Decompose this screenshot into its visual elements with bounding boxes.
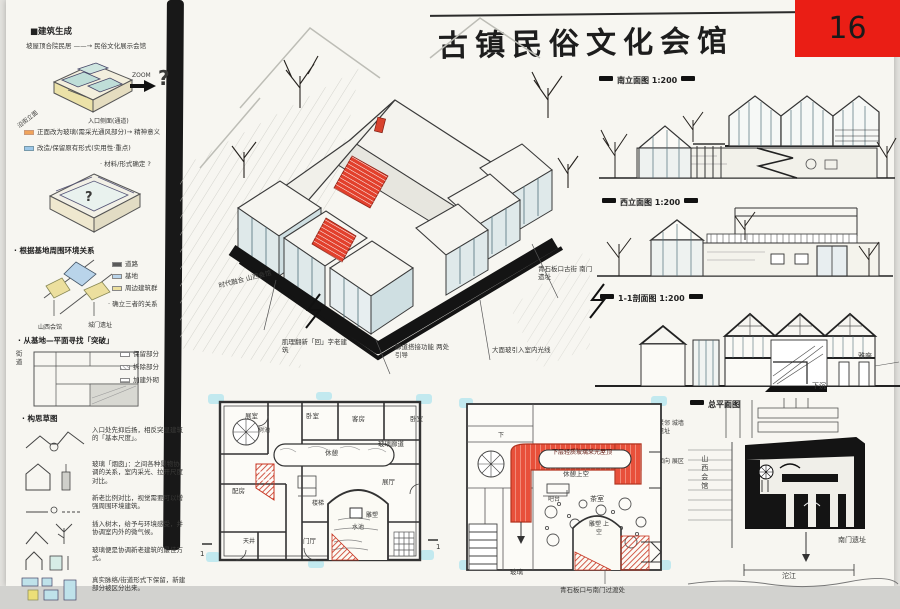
question-mark-2: ? — [85, 190, 93, 206]
truss-gables — [725, 314, 875, 336]
plan2-tea-room: 茶室 — [590, 495, 604, 504]
floor-plan-1 — [198, 392, 443, 577]
site-relation-diagram — [38, 258, 118, 320]
note-blue: 改造/保留原有形式(实用性·重点) — [24, 144, 174, 152]
note-three-relations: · 确立三者的关系 — [108, 300, 158, 308]
legend-addition-chip — [120, 378, 130, 383]
concept-glyph-3 — [24, 500, 86, 516]
axon-label-texture: 肌理翻新「回」字老建筑 — [282, 338, 352, 354]
legend-demolish: 拆除部分 — [120, 363, 159, 371]
legend-neighbors: 周边建筑群 — [112, 284, 158, 292]
legend-site: 基地 — [112, 272, 138, 280]
legend-keep-chip — [120, 352, 130, 357]
legend-road: 道路 — [112, 260, 138, 268]
west-elevation-drawing — [595, 200, 895, 285]
plan1-hall: 展厅 — [382, 478, 395, 486]
caption-entry-side: 入口侧面(通道) — [88, 118, 129, 126]
side-note-street: 街道 — [14, 350, 22, 367]
orange-marker-chip — [24, 130, 34, 135]
concept-note-5: 玻璃便是协调新老建筑的最佳方式。 — [92, 546, 186, 563]
plan1-side-room: 配房 — [232, 487, 245, 495]
axon-sketch-1 — [48, 60, 138, 120]
plan1-section-mark-left: 1 — [200, 550, 204, 559]
siteplan-label-gate: 南门遗址 — [838, 536, 866, 545]
note-material: · 材料/形式确定 ? — [100, 160, 151, 168]
concept-glyph-4 — [24, 520, 86, 548]
blue-marker-chip — [24, 146, 34, 151]
legend-addition: 加建外砌 — [120, 376, 159, 384]
design-board: 古镇民俗文化会馆 16 ■建筑生成 坡屋顶合院民居 ——→ 民俗文化展示会馆 Z… — [0, 0, 900, 609]
plan1-tree-pool: 树池 — [258, 427, 270, 435]
sidebar-heading-sketches: · 构思草图 — [22, 414, 57, 423]
plan2-sculpture-void: 雕塑 上空 — [588, 521, 610, 536]
concept-note-4: 插入树木，给予与环境感受，并协调室内外的微气候。 — [92, 520, 186, 537]
concept-glyph-2 — [24, 462, 86, 494]
south-gables — [725, 96, 879, 146]
concept-glyph-5 — [24, 548, 86, 574]
legend-site-chip — [112, 274, 122, 279]
plan2-down: 下 — [498, 432, 504, 440]
plan1-room-bed2: 卧室 — [410, 415, 423, 423]
axon-sketch-2 — [42, 170, 147, 240]
section-label-seat: 雅座 — [858, 352, 872, 361]
plan2-rest-void: 休憩上空 — [563, 470, 589, 478]
axonometric-drawing — [180, 48, 590, 378]
plan1-room-bed1: 卧室 — [306, 412, 319, 420]
floor-plan-2 — [455, 392, 705, 587]
railing-band — [707, 234, 857, 243]
siteplan-block — [746, 438, 864, 528]
plan1-court: 天井 — [243, 538, 255, 546]
concept-note-3: 新老比例对比，视觉需要可以增强周围环境建筑。 — [92, 494, 186, 511]
site-label-gate: 城门遗址 — [88, 322, 112, 330]
plan1-room-guest: 客房 — [352, 415, 365, 423]
sidebar-heading-breakthrough: · 从基地—平面寻找「突破」 — [18, 336, 113, 345]
south-elevation-drawing — [597, 80, 897, 185]
concept-note-6: 真实脉络/街道形式下保留，新建部分被区分出来。 — [92, 576, 186, 593]
plan1-sculpture: 雕塑 — [366, 512, 378, 520]
siteplan-drawing — [688, 398, 898, 593]
plan1-rest: 休憩 — [325, 449, 338, 457]
siteplan-label-river: 沱江 — [782, 572, 796, 581]
site-label-hall: 山西会馆 — [38, 324, 62, 332]
legend-keep: 保留部分 — [120, 350, 159, 358]
concept-glyph-1 — [24, 428, 86, 454]
sidebar-heading-context: · 根据基地周围环境关系 — [14, 246, 94, 255]
plan1-section-mark-right: 1 — [436, 543, 440, 552]
concept-note-1: 入口处先抑后扬，相反突显建筑的「基本尺度」。 — [92, 426, 184, 443]
zoom-arrow-icon — [130, 79, 156, 93]
legend-road-chip — [112, 262, 122, 267]
axon-label-glass: 大面玻引入室内光线 — [492, 346, 602, 354]
question-mark-1: ? — [158, 66, 170, 91]
plan1-glass-corridor: 玻璃廊道 — [378, 440, 404, 448]
axon-label-corridor: 廊道搭接功能 两处引导 — [395, 343, 455, 359]
plan2-glass: 玻璃 — [510, 568, 523, 576]
concept-note-2: 玻璃「烟囱」：之间各种景物协调的关系，室内采光、拉开尺度对比。 — [92, 460, 186, 485]
section-drawing — [593, 296, 900, 396]
axon-label-street: 青石板口古街 南门遗址 — [538, 265, 594, 281]
page-number: 16 — [828, 11, 866, 46]
plan2-bar: 吧台 — [548, 496, 560, 504]
plan1-stair: 楼梯 — [312, 500, 324, 508]
plan1-room-exhibit: 展室 — [245, 412, 258, 420]
plan1-entry-hall: 门厅 — [303, 537, 316, 545]
section-label-sunken: 下沉 — [812, 382, 826, 391]
note-orange: 正面改为玻璃(需采光通风部分)→ 精神意义 — [24, 128, 174, 136]
concept-glyph-6 — [20, 574, 90, 604]
sidebar-heading-generation: ■建筑生成 — [30, 27, 72, 38]
plan2-street-note: 青石板口与南门过渡处 — [560, 586, 625, 594]
page-number-box: 16 — [795, 0, 900, 57]
plan1-pool: 水池 — [352, 524, 364, 532]
legend-demolish-chip — [120, 365, 130, 370]
sidebar-generation-line: 坡屋顶合院民居 ——→ 民俗文化展示会馆 — [26, 42, 166, 50]
legend-neighbors-chip — [112, 286, 122, 291]
plan2-red-band-note: 下层轻质玻璃采光屋顶 — [552, 449, 648, 457]
